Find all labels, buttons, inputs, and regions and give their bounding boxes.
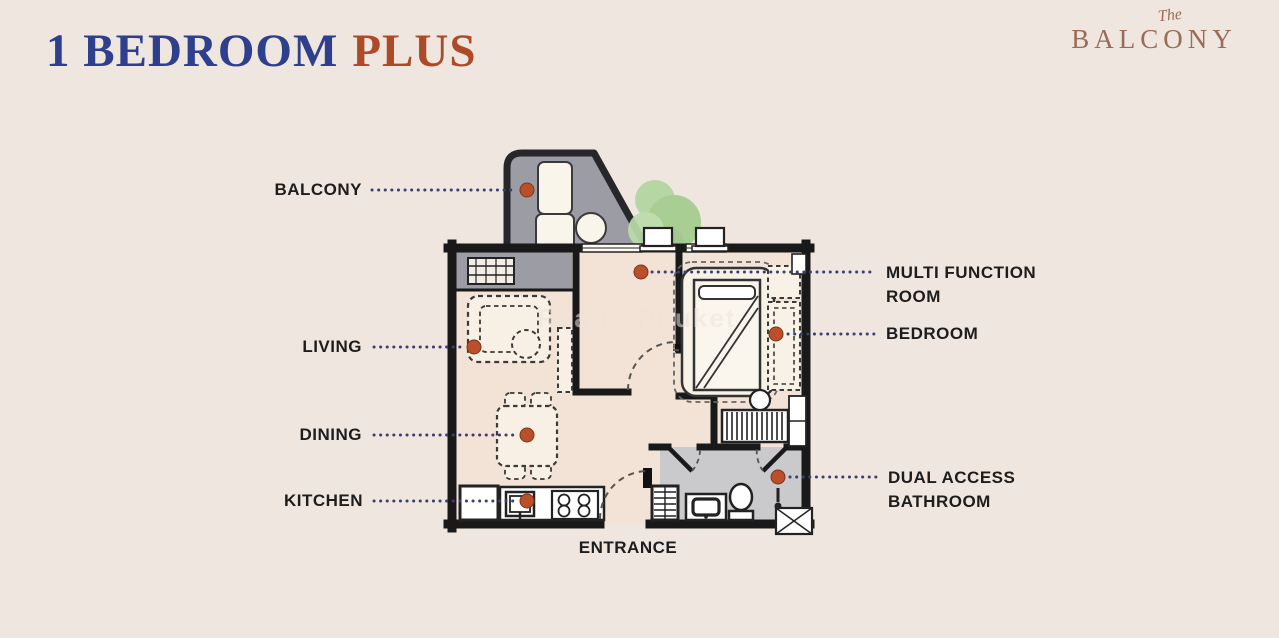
marker-dining [520,428,534,442]
toilet [729,484,753,520]
dressing-bench [768,302,800,390]
label-balcony: BALCONY [274,178,362,202]
page: 1 BEDROOMPLUS The BALCONY [0,0,1279,638]
label-living: LIVING [302,335,362,359]
marker-bathroom [771,470,785,484]
label-multi-function-room: MULTI FUNCTION ROOM [886,261,1061,309]
stove [552,491,598,519]
label-kitchen: KITCHEN [284,489,363,513]
dressing-shelf [789,396,806,446]
marker-multi [634,265,648,279]
closet-rack [722,410,788,442]
marker-living [467,340,481,354]
label-entrance: ENTRANCE [558,536,698,560]
shoe-shelf [652,486,678,520]
label-dual-access-bathroom: DUAL ACCESS BATHROOM [888,466,1033,514]
marker-kitchen [520,494,534,508]
drying-rack [468,258,514,284]
marker-bedroom [769,327,783,341]
vanity-sink [686,494,726,520]
stool [750,390,770,410]
watermark: Realty-Phuket [537,303,736,334]
fridge [460,486,498,520]
coffee-table [512,330,540,358]
tv-console [558,328,572,392]
condenser-box [776,508,812,534]
label-dining: DINING [300,423,363,447]
label-bedroom: BEDROOM [886,322,978,346]
marker-balcony [520,183,534,197]
